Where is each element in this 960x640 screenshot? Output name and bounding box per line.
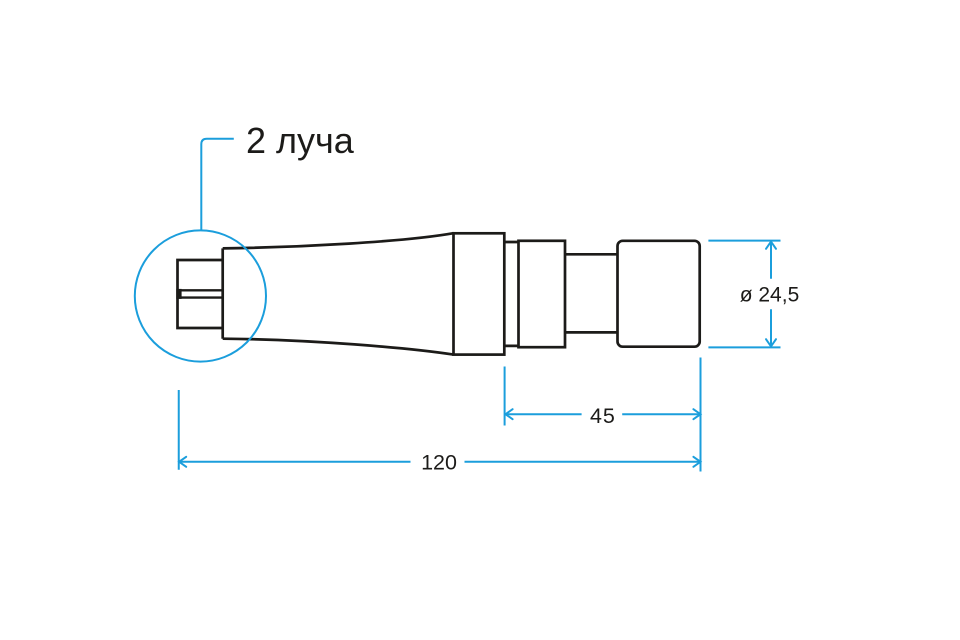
svg-text:120: 120	[421, 451, 457, 475]
svg-text:45: 45	[590, 404, 616, 428]
svg-text:ø 24,5: ø 24,5	[740, 283, 800, 306]
svg-text:2 луча: 2 луча	[246, 120, 355, 161]
